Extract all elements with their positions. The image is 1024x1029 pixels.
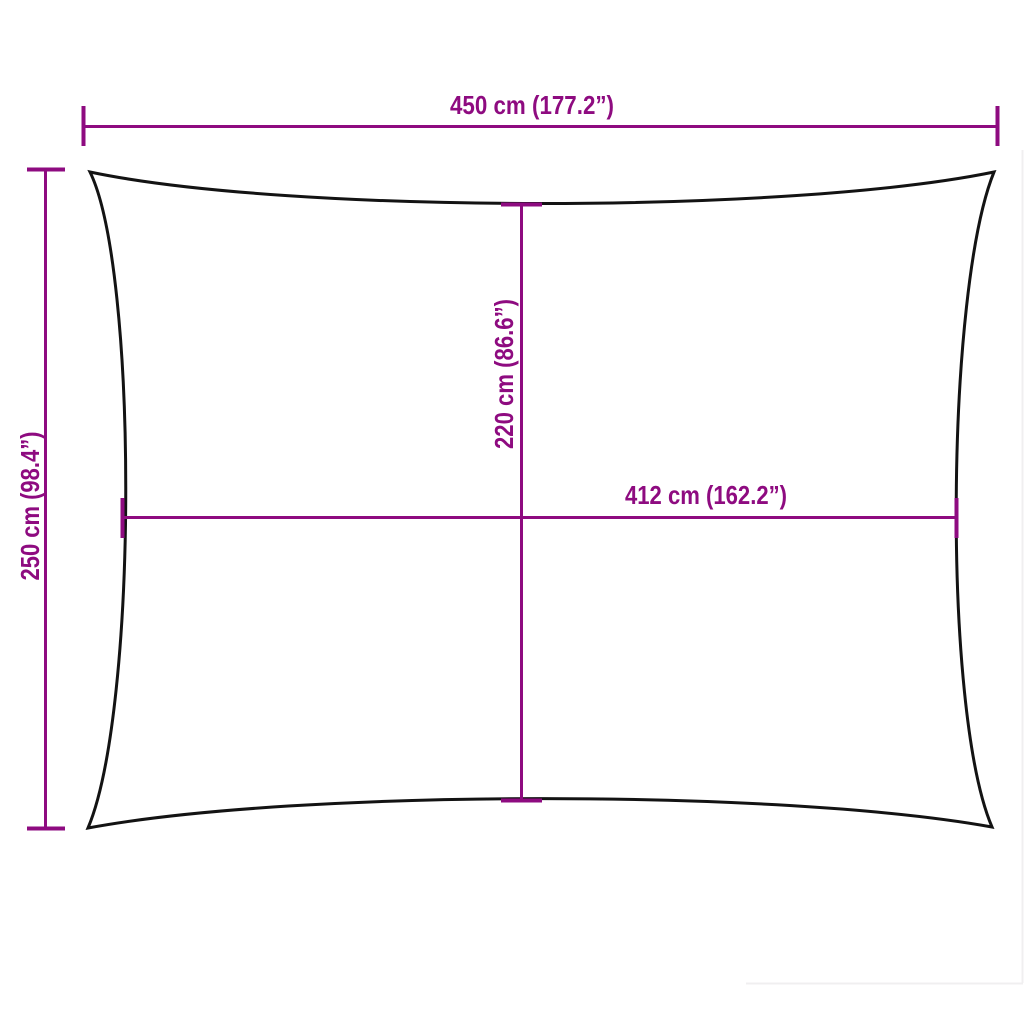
svg-text:250 cm (98.4”): 250 cm (98.4”) <box>15 432 45 581</box>
svg-text:412 cm (162.2”): 412 cm (162.2”) <box>625 480 787 510</box>
svg-text:450 cm (177.2”): 450 cm (177.2”) <box>450 90 614 120</box>
svg-text:220 cm (86.6”): 220 cm (86.6”) <box>489 299 519 449</box>
